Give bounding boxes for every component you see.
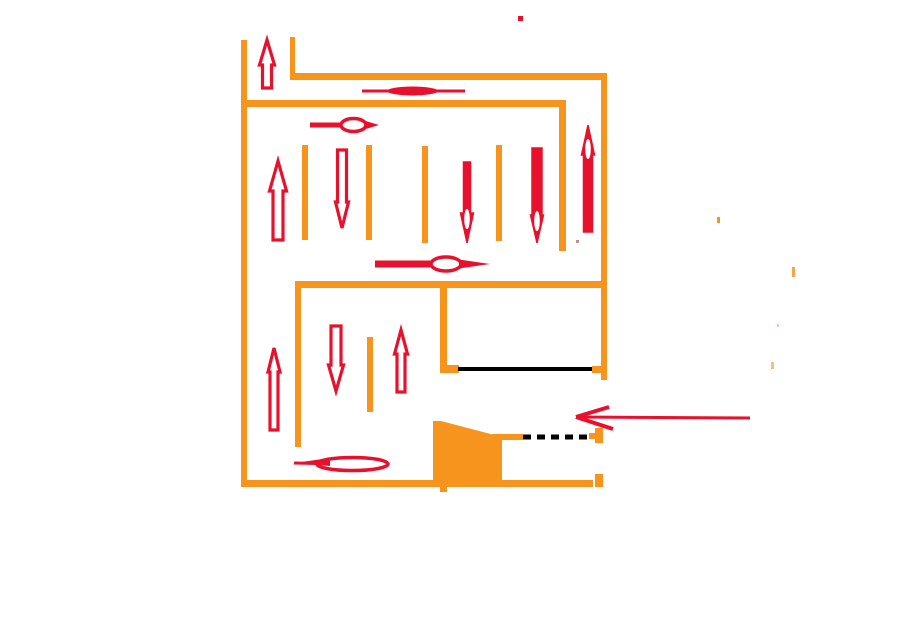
parking-divider xyxy=(367,337,373,412)
parking-floor-plan xyxy=(0,0,914,639)
stray-gray-dot xyxy=(576,240,579,243)
parking-divider xyxy=(496,145,502,241)
flow-arrow-up xyxy=(268,348,280,430)
flow-arrow-right-lens-body xyxy=(387,87,438,96)
flow-arrow-up xyxy=(260,40,275,88)
stray-orange-tick xyxy=(771,362,774,369)
bottom-right-corner xyxy=(595,474,603,487)
flow-arrow-down xyxy=(461,162,474,243)
room-left-wall xyxy=(440,283,447,372)
flow-arrow-down xyxy=(336,150,349,228)
flow-arrow-right-ring xyxy=(431,257,461,271)
stray-red-dash xyxy=(539,193,542,199)
entrance-arrow-left-shaft xyxy=(576,417,750,418)
flow-arrow-right-ring xyxy=(341,119,366,132)
entrance-arrow-left-barb-upper xyxy=(576,407,609,417)
parking-divider xyxy=(422,146,428,243)
upper-inner-wall xyxy=(242,100,566,107)
entrance-arrow-left-barb-lower xyxy=(576,417,613,429)
stray-orange-tick xyxy=(717,217,720,223)
flow-arrow-right-tip xyxy=(364,121,379,130)
parking-divider xyxy=(366,145,372,240)
flow-arrow-down-inner-oval xyxy=(464,209,470,229)
top-outer-wall xyxy=(290,73,607,80)
bottom-stub xyxy=(440,486,447,492)
flow-arrow-right-tip xyxy=(459,260,490,269)
flow-arrow-down xyxy=(329,326,344,391)
gate-post-tab xyxy=(589,433,596,439)
right-outer-wall xyxy=(601,73,607,380)
parking-divider xyxy=(302,145,308,240)
middle-wall xyxy=(295,281,607,288)
stray-pink-dot xyxy=(777,324,779,327)
flow-arrow-down-inner-oval xyxy=(534,211,540,231)
flow-arrow-up xyxy=(270,161,287,240)
flow-arrow-up xyxy=(395,330,408,392)
ramp-wedge xyxy=(433,421,502,486)
stray-orange-tick xyxy=(792,267,795,277)
floor-plan-drawing xyxy=(0,0,914,639)
gate-post xyxy=(595,428,603,443)
left-column-wall xyxy=(295,281,301,447)
bottom-wall xyxy=(241,480,593,487)
flow-arrow-up-inner-oval xyxy=(585,139,591,159)
top-entry-wall xyxy=(290,37,295,77)
inner-corner-wall xyxy=(559,100,566,251)
stray-red-dot xyxy=(518,16,523,21)
room-right-stub xyxy=(592,366,602,373)
room-left-stub xyxy=(440,365,459,373)
